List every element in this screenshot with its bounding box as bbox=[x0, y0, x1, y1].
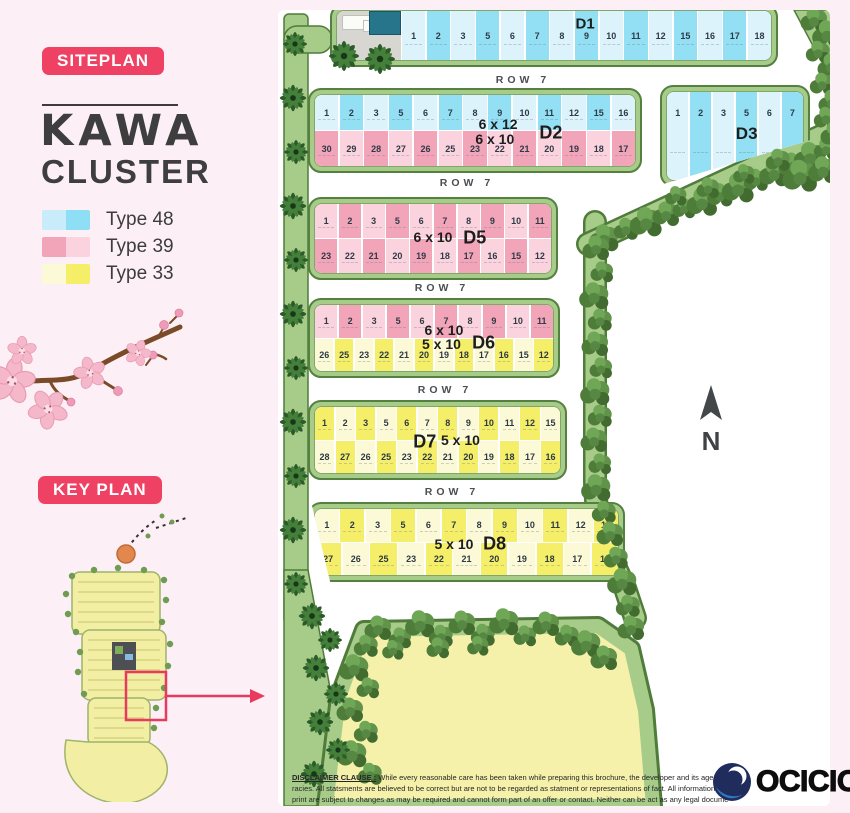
lot-number: 20 bbox=[392, 251, 402, 261]
lot-number: 20 bbox=[544, 144, 554, 154]
lot-number: 16 bbox=[705, 31, 715, 41]
lot-number: 3 bbox=[721, 108, 726, 118]
lot-number: 9 bbox=[490, 216, 495, 226]
lot-29: 29 bbox=[340, 131, 363, 166]
lot-number: 3 bbox=[371, 216, 376, 226]
lot-2: 2 bbox=[427, 11, 450, 60]
lot-number: 23 bbox=[321, 251, 331, 261]
lot-number: 7 bbox=[425, 418, 430, 428]
lot-number: 26 bbox=[319, 350, 329, 360]
lot-number: 16 bbox=[499, 350, 509, 360]
lot-number: 3 bbox=[372, 316, 377, 326]
lot-number: 12 bbox=[535, 251, 545, 261]
lot-number: 19 bbox=[484, 452, 494, 462]
disclaimer-title: DISCLAIMER CLAUSE : bbox=[292, 773, 376, 782]
lot-12: 12 bbox=[649, 11, 672, 60]
lot-30: 30 bbox=[315, 131, 338, 166]
lot-number: 15 bbox=[594, 108, 604, 118]
legend-row-type39: Type 39 bbox=[42, 233, 174, 260]
block-d8: 1235678910111215 2726252322212019181716 … bbox=[308, 502, 625, 582]
lot-2: 2 bbox=[336, 407, 355, 440]
block-d6-size-bottom: 5 x 10 bbox=[422, 336, 461, 352]
lot-number: 17 bbox=[618, 144, 628, 154]
lot-6: 6 bbox=[501, 11, 524, 60]
lot-number: 8 bbox=[477, 520, 482, 530]
legend-row-type33: Type 33 bbox=[42, 260, 174, 287]
block-d5-label: D5 bbox=[463, 227, 486, 248]
block-d7-bottom-row: 282726252322212019181716 bbox=[315, 440, 560, 474]
block-d6: 123567891011 262523222120191817161512 6 … bbox=[308, 298, 560, 378]
street-label-row7-2: ROW 7 bbox=[440, 177, 494, 189]
lot-number: 25 bbox=[381, 452, 391, 462]
lot-19: 19 bbox=[479, 441, 498, 474]
lot-number: 9 bbox=[491, 316, 496, 326]
street-label-row7-4: ROW 7 bbox=[418, 384, 472, 396]
disclaimer-line2: racies. All statsments are believed to b… bbox=[292, 784, 728, 795]
lot-number: 6 bbox=[510, 31, 515, 41]
lot-number: 8 bbox=[467, 316, 472, 326]
siteplan-badge: SITEPLAN bbox=[42, 47, 164, 75]
lot-number: 5 bbox=[396, 316, 401, 326]
lot-number: 7 bbox=[442, 216, 447, 226]
lot-number: 16 bbox=[546, 452, 556, 462]
lot-21: 21 bbox=[395, 339, 413, 372]
lot-number: 1 bbox=[675, 108, 680, 118]
street-label-row7-5: ROW 7 bbox=[425, 486, 479, 498]
lot-25: 25 bbox=[439, 131, 462, 166]
lot-number: 18 bbox=[440, 251, 450, 261]
lot-18: 18 bbox=[537, 543, 563, 576]
lot-number: 10 bbox=[606, 31, 616, 41]
block-d8-size: 5 x 10 bbox=[435, 536, 474, 552]
lot-20: 20 bbox=[386, 239, 408, 273]
lot-16: 16 bbox=[495, 339, 513, 372]
lot-11: 11 bbox=[624, 11, 647, 60]
lot-number: 8 bbox=[466, 216, 471, 226]
lot-15: 15 bbox=[541, 407, 560, 440]
lot-number: 16 bbox=[618, 108, 628, 118]
clubhouse-area bbox=[337, 11, 402, 60]
block-d7: 1235678910111215 28272625232221201918171… bbox=[308, 400, 567, 480]
lot-number: 2 bbox=[347, 216, 352, 226]
lot-5: 5 bbox=[387, 305, 409, 338]
cherry-blossom-illustration bbox=[0, 293, 193, 463]
lot-number: 18 bbox=[594, 144, 604, 154]
block-d8-label: D8 bbox=[483, 534, 506, 555]
lot-number: 7 bbox=[790, 108, 795, 118]
lot-number: 26 bbox=[351, 554, 361, 564]
lot-23: 23 bbox=[355, 339, 373, 372]
lot-number: 11 bbox=[631, 31, 641, 41]
lot-number: 6 bbox=[419, 216, 424, 226]
lot-number: 22 bbox=[422, 452, 432, 462]
lot-2: 2 bbox=[690, 92, 711, 180]
lot-3: 3 bbox=[364, 95, 387, 130]
keyplan-arrow bbox=[166, 689, 265, 703]
lot-26: 26 bbox=[356, 441, 375, 474]
lot-11: 11 bbox=[529, 204, 551, 238]
block-d7-top-row: 1235678910111215 bbox=[315, 407, 560, 440]
lot-5: 5 bbox=[377, 407, 396, 440]
swimming-pool bbox=[370, 12, 400, 34]
lot-number: 19 bbox=[517, 554, 527, 564]
lot-number: 1 bbox=[322, 418, 327, 428]
lot-number: 27 bbox=[340, 452, 350, 462]
block-d2-size-bottom: 6 x 10 bbox=[475, 131, 514, 147]
lot-5: 5 bbox=[389, 95, 412, 130]
lot-15: 15 bbox=[594, 509, 618, 542]
type-legend: Type 48 Type 39 Type 33 bbox=[42, 206, 174, 287]
lot-15: 15 bbox=[505, 239, 527, 273]
cluster-title: KAWA bbox=[40, 110, 203, 153]
lot-22: 22 bbox=[375, 339, 393, 372]
lot-number: 20 bbox=[463, 452, 473, 462]
lot-number: 2 bbox=[350, 520, 355, 530]
lot-number: 1 bbox=[324, 216, 329, 226]
block-d1: 1235678910111215161718 D1 bbox=[330, 10, 778, 67]
lot-number: 15 bbox=[519, 350, 529, 360]
lot-number: 7 bbox=[451, 520, 456, 530]
ocicio-logo-text: OCICIO bbox=[756, 765, 850, 799]
lot-5: 5 bbox=[476, 11, 499, 60]
block-d7-label: D7 bbox=[413, 431, 436, 452]
lot-23: 23 bbox=[315, 239, 337, 273]
disclaimer-line3: print are subject to changes as may be r… bbox=[292, 795, 728, 806]
block-d2-top-row: 123567891011121516 bbox=[315, 95, 635, 130]
lot-number: 27 bbox=[396, 144, 406, 154]
lot-number: 9 bbox=[502, 520, 507, 530]
lot-number: 10 bbox=[525, 520, 535, 530]
keyplan-map bbox=[28, 502, 268, 802]
block-d6-label: D6 bbox=[472, 333, 495, 354]
lot-number: 12 bbox=[576, 520, 586, 530]
keyplan-badge: KEY PLAN bbox=[38, 476, 162, 504]
lot-3: 3 bbox=[451, 11, 474, 60]
lot-number: 10 bbox=[484, 418, 494, 428]
lot-10: 10 bbox=[507, 305, 529, 338]
lot-1: 1 bbox=[402, 11, 425, 60]
lot-number: 7 bbox=[535, 31, 540, 41]
legend-label-type33: Type 33 bbox=[106, 263, 174, 285]
lot-number: 10 bbox=[519, 108, 529, 118]
lot-number: 11 bbox=[551, 520, 561, 530]
lot-number: 1 bbox=[324, 520, 329, 530]
lot-number: 5 bbox=[401, 520, 406, 530]
lot-number: 12 bbox=[539, 350, 549, 360]
lot-2: 2 bbox=[339, 305, 361, 338]
lot-12: 12 bbox=[562, 95, 585, 130]
lot-number: 30 bbox=[322, 144, 332, 154]
lot-number: 28 bbox=[371, 144, 381, 154]
lot-number: 6 bbox=[423, 108, 428, 118]
lot-17: 17 bbox=[564, 543, 590, 576]
lot-number: 6 bbox=[767, 108, 772, 118]
lot-25: 25 bbox=[377, 441, 396, 474]
lot-21: 21 bbox=[513, 131, 536, 166]
lot-number: 22 bbox=[434, 554, 444, 564]
legend-label-type48: Type 48 bbox=[106, 209, 174, 231]
block-d2-label: D2 bbox=[539, 122, 562, 143]
lot-26: 26 bbox=[414, 131, 437, 166]
lot-25: 25 bbox=[335, 339, 353, 372]
lot-number: 19 bbox=[569, 144, 579, 154]
lot-number: 15 bbox=[601, 520, 611, 530]
lot-number: 3 bbox=[374, 108, 379, 118]
lot-number: 28 bbox=[320, 452, 330, 462]
lot-number: 21 bbox=[399, 350, 409, 360]
lot-23: 23 bbox=[398, 543, 424, 576]
keyplan-badge-label: KEY PLAN bbox=[53, 480, 147, 499]
lot-number: 25 bbox=[445, 144, 455, 154]
lot-number: 2 bbox=[349, 108, 354, 118]
lot-12: 12 bbox=[569, 509, 593, 542]
lot-number: 12 bbox=[569, 108, 579, 118]
lot-number: 23 bbox=[406, 554, 416, 564]
lot-number: 9 bbox=[466, 418, 471, 428]
lot-number: 21 bbox=[519, 144, 529, 154]
lot-10: 10 bbox=[479, 407, 498, 440]
lot-number: 22 bbox=[345, 251, 355, 261]
lot-number: 1 bbox=[411, 31, 416, 41]
lot-18: 18 bbox=[500, 441, 519, 474]
lot-25: 25 bbox=[370, 543, 396, 576]
legend-swatch-type33 bbox=[42, 264, 90, 284]
disclaimer-text: DISCLAIMER CLAUSE : While every reasonab… bbox=[292, 773, 728, 806]
lot-number: 11 bbox=[535, 216, 545, 226]
lot-number: 10 bbox=[511, 216, 521, 226]
lot-number: 17 bbox=[572, 554, 582, 564]
cluster-subtitle: CLUSTER bbox=[41, 153, 211, 191]
lot-15: 15 bbox=[587, 95, 610, 130]
lot-number: 5 bbox=[485, 31, 490, 41]
lot-number: 23 bbox=[359, 350, 369, 360]
lot-1: 1 bbox=[315, 407, 334, 440]
lot-number: 18 bbox=[754, 31, 764, 41]
lot-11: 11 bbox=[500, 407, 519, 440]
lot-18: 18 bbox=[587, 131, 610, 166]
lot-number: 17 bbox=[464, 251, 474, 261]
lot-number: 5 bbox=[744, 108, 749, 118]
lot-3: 3 bbox=[366, 509, 390, 542]
ocicio-logo-icon bbox=[712, 762, 752, 802]
lot-number: 10 bbox=[513, 316, 523, 326]
lot-1: 1 bbox=[315, 95, 338, 130]
lot-12: 12 bbox=[520, 407, 539, 440]
lot-5: 5 bbox=[391, 509, 415, 542]
lot-1: 1 bbox=[315, 204, 337, 238]
lot-number: 25 bbox=[339, 350, 349, 360]
lot-number: 5 bbox=[384, 418, 389, 428]
lot-12: 12 bbox=[534, 339, 552, 372]
lot-number: 1 bbox=[324, 108, 329, 118]
lot-number: 2 bbox=[436, 31, 441, 41]
lot-17: 17 bbox=[520, 441, 539, 474]
lot-number: 22 bbox=[379, 350, 389, 360]
lot-number: 3 bbox=[363, 418, 368, 428]
block-d5-size: 6 x 10 bbox=[414, 229, 453, 245]
lot-number: 26 bbox=[421, 144, 431, 154]
lot-6: 6 bbox=[414, 95, 437, 130]
block-d2: 123567891011121516 302928272625232221201… bbox=[308, 88, 642, 173]
lot-number: 8 bbox=[473, 108, 478, 118]
lot-number: 17 bbox=[730, 31, 740, 41]
street-label-row7-1: ROW 7 bbox=[496, 74, 550, 86]
siteplan-panel: 1235678910111215161718 D1 12356789101112… bbox=[278, 10, 830, 806]
lot-number: 26 bbox=[361, 452, 371, 462]
lot-26: 26 bbox=[343, 543, 369, 576]
lot-number: 18 bbox=[504, 452, 514, 462]
lot-number: 15 bbox=[511, 251, 521, 261]
legend-row-type48: Type 48 bbox=[42, 206, 174, 233]
lot-27: 27 bbox=[389, 131, 412, 166]
lot-10: 10 bbox=[600, 11, 623, 60]
lot-16: 16 bbox=[612, 95, 635, 130]
lot-number: 12 bbox=[525, 418, 535, 428]
block-d1-label: D1 bbox=[575, 16, 594, 33]
lot-27: 27 bbox=[336, 441, 355, 474]
lot-28: 28 bbox=[315, 441, 334, 474]
lot-3: 3 bbox=[363, 204, 385, 238]
lot-10: 10 bbox=[505, 204, 527, 238]
lot-12: 12 bbox=[529, 239, 551, 273]
lot-16: 16 bbox=[592, 543, 618, 576]
disclaimer-line1: While every reasonable care has been tak… bbox=[378, 773, 728, 782]
lot-number: 21 bbox=[462, 554, 472, 564]
lot-8: 8 bbox=[550, 11, 573, 60]
lot-17: 17 bbox=[612, 131, 635, 166]
lot-number: 3 bbox=[375, 520, 380, 530]
lot-number: 16 bbox=[600, 554, 610, 564]
lot-19: 19 bbox=[562, 131, 585, 166]
lot-2: 2 bbox=[340, 509, 364, 542]
lot-number: 25 bbox=[378, 554, 388, 564]
lot-number: 3 bbox=[461, 31, 466, 41]
lot-number: 2 bbox=[348, 316, 353, 326]
lot-1: 1 bbox=[315, 305, 337, 338]
lot-number: 6 bbox=[404, 418, 409, 428]
lot-7: 7 bbox=[439, 95, 462, 130]
lot-7: 7 bbox=[526, 11, 549, 60]
lot-3: 3 bbox=[356, 407, 375, 440]
lot-number: 2 bbox=[343, 418, 348, 428]
lot-26: 26 bbox=[315, 339, 333, 372]
street-label-row7-3: ROW 7 bbox=[415, 282, 469, 294]
lot-11: 11 bbox=[531, 305, 553, 338]
lot-22: 22 bbox=[339, 239, 361, 273]
lot-15: 15 bbox=[515, 339, 533, 372]
lot-number: 8 bbox=[445, 418, 450, 428]
lot-number: 8 bbox=[559, 31, 564, 41]
lot-17: 17 bbox=[723, 11, 746, 60]
lot-16: 16 bbox=[698, 11, 721, 60]
lot-19: 19 bbox=[509, 543, 535, 576]
lot-number: 1 bbox=[324, 316, 329, 326]
lot-number: 5 bbox=[395, 216, 400, 226]
lot-number: 18 bbox=[545, 554, 555, 564]
lot-2: 2 bbox=[339, 204, 361, 238]
lot-28: 28 bbox=[364, 131, 387, 166]
lot-number: 20 bbox=[489, 554, 499, 564]
block-d5: 123567891011 23222120191817161512 6 x 10… bbox=[308, 197, 558, 280]
lot-2: 2 bbox=[340, 95, 363, 130]
lot-number: 11 bbox=[544, 108, 554, 118]
lot-11: 11 bbox=[543, 509, 567, 542]
lot-15: 15 bbox=[674, 11, 697, 60]
legend-label-type39: Type 39 bbox=[106, 236, 174, 258]
block-d7-size: 5 x 10 bbox=[441, 432, 480, 448]
lot-10: 10 bbox=[518, 509, 542, 542]
ocicio-logo: OCICIO bbox=[712, 762, 850, 802]
lot-number: 17 bbox=[525, 452, 535, 462]
lot-number: 23 bbox=[402, 452, 412, 462]
lot-number: 15 bbox=[546, 418, 556, 428]
lot-number: 12 bbox=[656, 31, 666, 41]
lot-number: 11 bbox=[537, 316, 547, 326]
legend-swatch-type48 bbox=[42, 210, 90, 230]
lot-16: 16 bbox=[541, 441, 560, 474]
lot-number: 29 bbox=[346, 144, 356, 154]
lot-number: 6 bbox=[426, 520, 431, 530]
lot-3: 3 bbox=[363, 305, 385, 338]
keyplan-facility-block bbox=[112, 642, 136, 670]
legend-swatch-type39 bbox=[42, 237, 90, 257]
block-d3-label: D3 bbox=[736, 124, 758, 144]
lot-1: 1 bbox=[667, 92, 688, 180]
lot-number: 5 bbox=[398, 108, 403, 118]
lot-18: 18 bbox=[748, 11, 771, 60]
lot-number: 15 bbox=[680, 31, 690, 41]
lot-number: 2 bbox=[698, 108, 703, 118]
siteplan-badge-label: SITEPLAN bbox=[57, 51, 149, 70]
lot-number: 16 bbox=[487, 251, 497, 261]
lot-number: 11 bbox=[505, 418, 515, 428]
lot-number: 7 bbox=[448, 108, 453, 118]
lot-5: 5 bbox=[386, 204, 408, 238]
lot-number: 21 bbox=[369, 251, 379, 261]
lot-number: 19 bbox=[416, 251, 426, 261]
lot-number: 21 bbox=[443, 452, 453, 462]
lot-21: 21 bbox=[363, 239, 385, 273]
